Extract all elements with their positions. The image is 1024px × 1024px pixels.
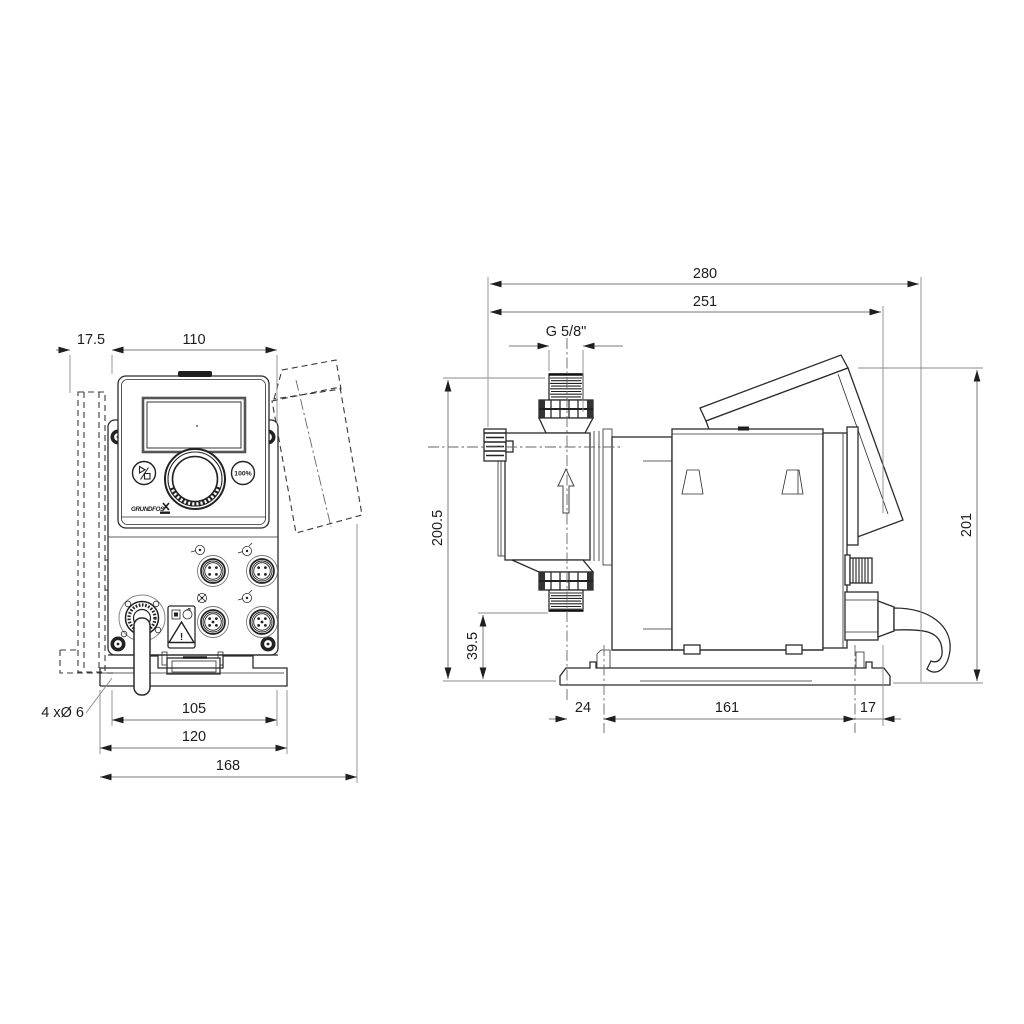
full-capacity-label: 100%: [234, 471, 251, 478]
lcd-display: [143, 398, 245, 452]
power-cable-front: [134, 618, 150, 695]
dim-total-width: 168: [216, 758, 240, 774]
inlet-neck: [512, 560, 593, 572]
full-capacity-button[interactable]: 100%: [232, 462, 255, 485]
rear-cable-gland: [845, 592, 950, 672]
dim-hole-note: 4 xØ 6: [41, 705, 84, 721]
m12-socket[interactable]: [247, 556, 278, 587]
base-plate-side: [560, 645, 890, 685]
dim-offset: 17.5: [77, 332, 105, 348]
union-nut-bottom: [539, 572, 593, 590]
outlet-neck: [539, 418, 593, 433]
start-stop-button[interactable]: [133, 462, 156, 485]
dim-width: 110: [182, 332, 205, 348]
control-cube-dashed-outline: [272, 360, 362, 533]
dim-rear-offset: 17: [860, 700, 876, 716]
inlet-thread: [549, 590, 583, 611]
warning-label: !: [168, 606, 195, 648]
outlet-thread: [549, 374, 583, 400]
union-nut-top: [539, 400, 593, 418]
gear-housing: [612, 427, 847, 651]
dosing-head: [484, 374, 612, 611]
dim-rear-height: 201: [959, 513, 975, 537]
dim-base-hole-spacing: 161: [715, 700, 739, 716]
dim-inlet-height: 39.5: [465, 632, 481, 660]
screw-icon: [261, 637, 276, 652]
power-cable-side: [894, 608, 950, 672]
rear-connector-plug: [845, 555, 872, 585]
screw-icon: [111, 637, 126, 652]
pump-dimensional-drawing: 100% GRUNDFOS: [0, 0, 1024, 1024]
dim-height: 200.5: [430, 510, 446, 546]
dim-thread: G 5/8": [546, 324, 587, 340]
control-panel: 100% GRUNDFOS: [118, 371, 269, 528]
side-view: 280 251 G 5/8" 200.5 39.5 201 24 1: [428, 266, 983, 733]
panel-top-tab: [178, 371, 212, 377]
m12-socket[interactable]: [198, 607, 229, 638]
m12-socket[interactable]: [247, 607, 278, 638]
svg-text:!: !: [180, 632, 183, 643]
front-view: 100% GRUNDFOS: [41, 332, 362, 783]
dim-depth-to-cube: 251: [693, 294, 717, 310]
m12-socket[interactable]: [198, 556, 229, 587]
dim-total-depth: 280: [693, 266, 717, 282]
click-wheel[interactable]: [165, 449, 225, 509]
dim-front-offset: 24: [575, 700, 591, 716]
dim-hole-spacing: 105: [182, 701, 206, 717]
technical-drawing-page: 100% GRUNDFOS: [0, 0, 1024, 1024]
dim-plate-width: 120: [182, 729, 206, 745]
